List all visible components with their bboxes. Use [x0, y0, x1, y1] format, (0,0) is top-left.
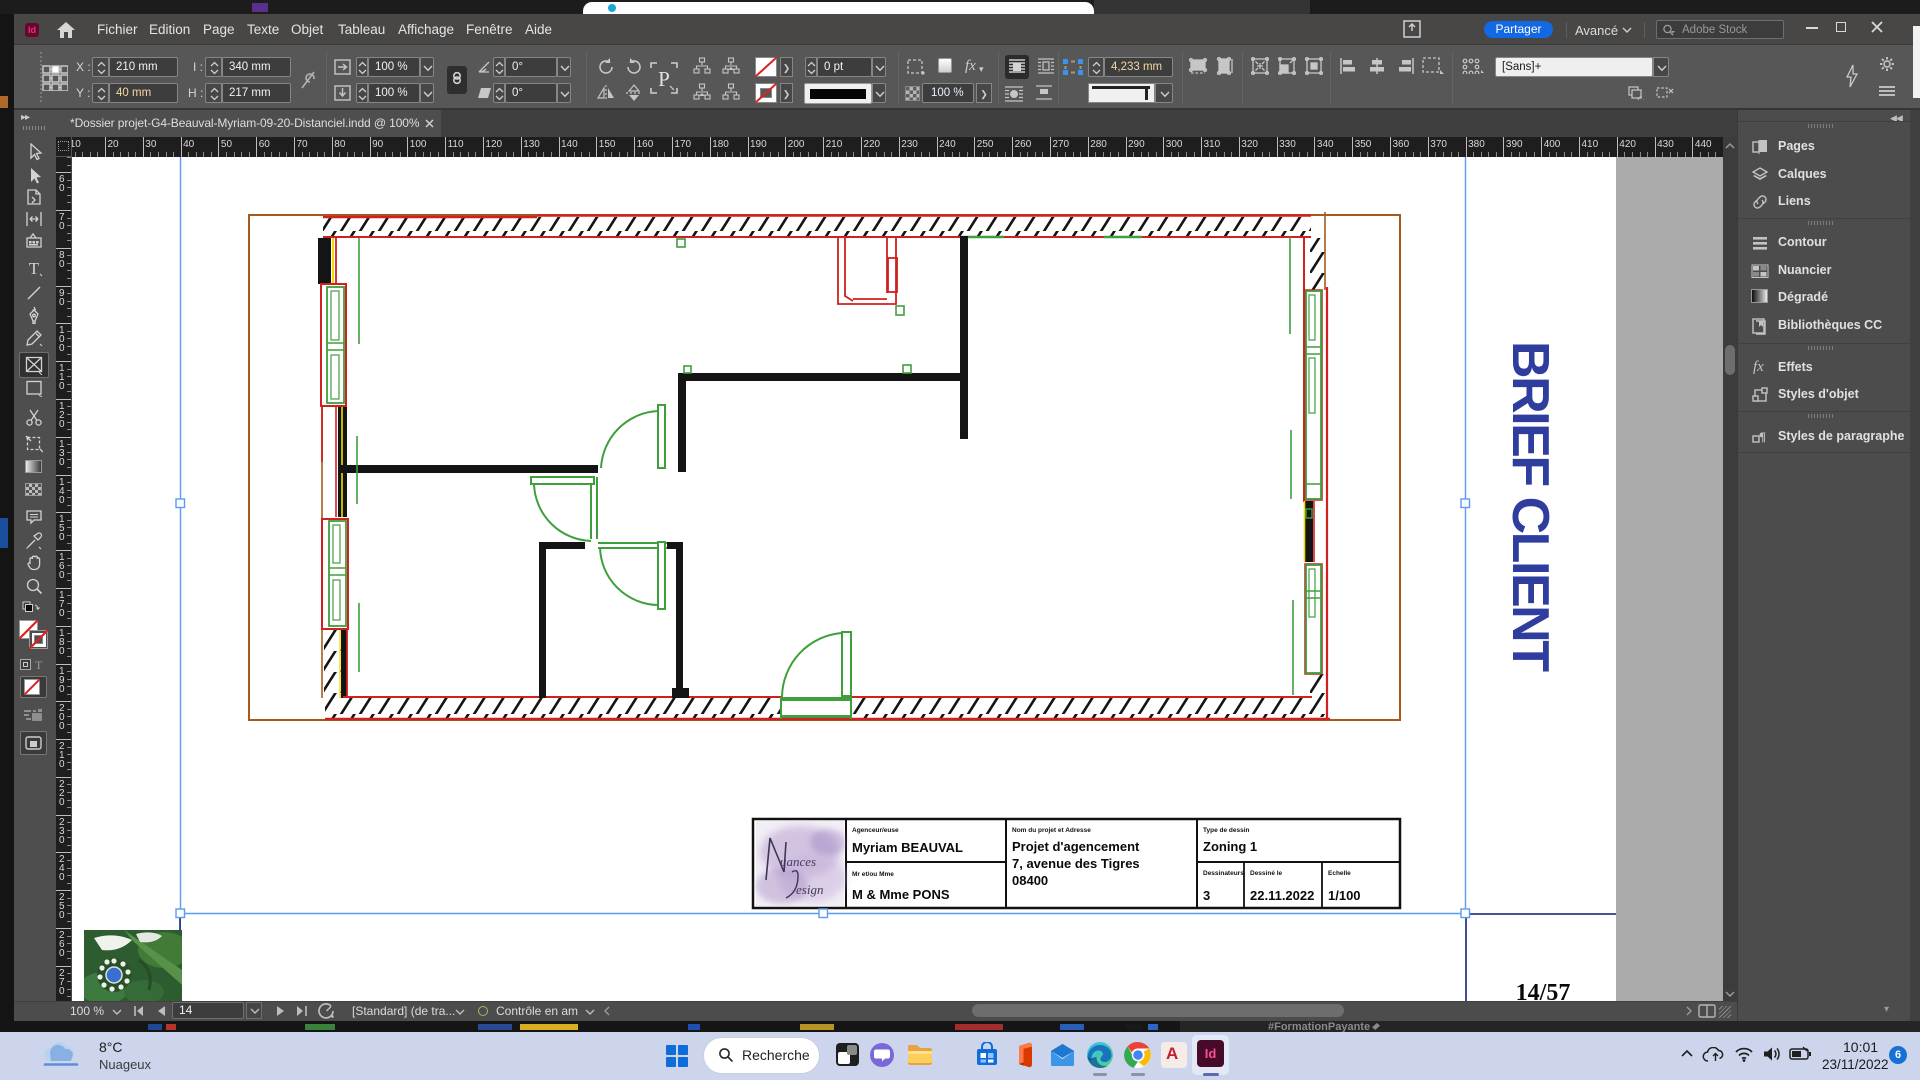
svg-text:Dessiné le: Dessiné le: [1250, 870, 1283, 877]
svg-text:Mr et/ou Mme: Mr et/ou Mme: [852, 871, 894, 878]
svg-text:M & Mme PONS: M & Mme PONS: [852, 887, 950, 902]
svg-text:08400: 08400: [1012, 873, 1048, 888]
svg-text:uances: uances: [780, 854, 816, 869]
svg-text:7, avenue des Tigres: 7, avenue des Tigres: [1012, 856, 1140, 871]
svg-text:¶: ¶: [1759, 429, 1766, 444]
svg-text:T: T: [29, 259, 40, 277]
svg-text:Dessinateurs: Dessinateurs: [1203, 870, 1244, 877]
svg-text:Type de dessin: Type de dessin: [1203, 827, 1250, 834]
svg-text:3: 3: [1203, 888, 1210, 903]
svg-text:esign: esign: [796, 882, 823, 897]
svg-text:14/57: 14/57: [1516, 980, 1571, 1001]
svg-text:Projet d'agencement: Projet d'agencement: [1012, 839, 1140, 854]
svg-text:P: P: [658, 67, 670, 91]
svg-text:Echelle: Echelle: [1328, 870, 1351, 877]
svg-text:BRIEF CLIENT: BRIEF CLIENT: [1501, 341, 1559, 672]
svg-text:Zoning 1: Zoning 1: [1203, 839, 1257, 854]
svg-text:Myriam BEAUVAL: Myriam BEAUVAL: [852, 840, 963, 855]
svg-text:22.11.2022: 22.11.2022: [1250, 888, 1314, 903]
svg-text:Agenceur/euse: Agenceur/euse: [852, 827, 899, 834]
svg-text:1/100: 1/100: [1328, 888, 1361, 903]
svg-text:Nom du projet et Adresse: Nom du projet et Adresse: [1012, 827, 1091, 834]
